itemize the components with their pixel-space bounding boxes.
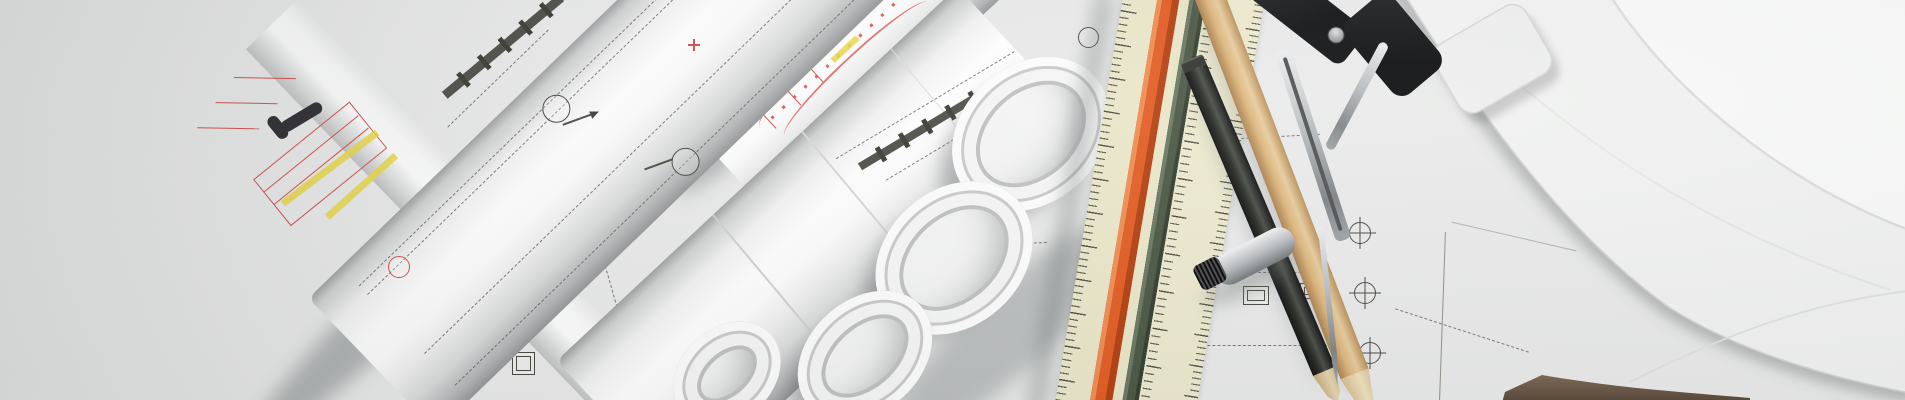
red-line <box>234 77 296 79</box>
red-line <box>197 127 259 129</box>
desk-photo-scene <box>0 0 1905 400</box>
slope-arrow <box>644 158 673 170</box>
red-line <box>216 102 278 104</box>
desk-wood-edge <box>1500 375 1750 400</box>
slope-arrow-head <box>589 108 600 119</box>
red-cross <box>693 39 695 51</box>
red-section-mark <box>388 256 410 278</box>
section-title <box>273 58 274 59</box>
column-symbol <box>512 352 535 375</box>
scale-value <box>994 0 999 5</box>
